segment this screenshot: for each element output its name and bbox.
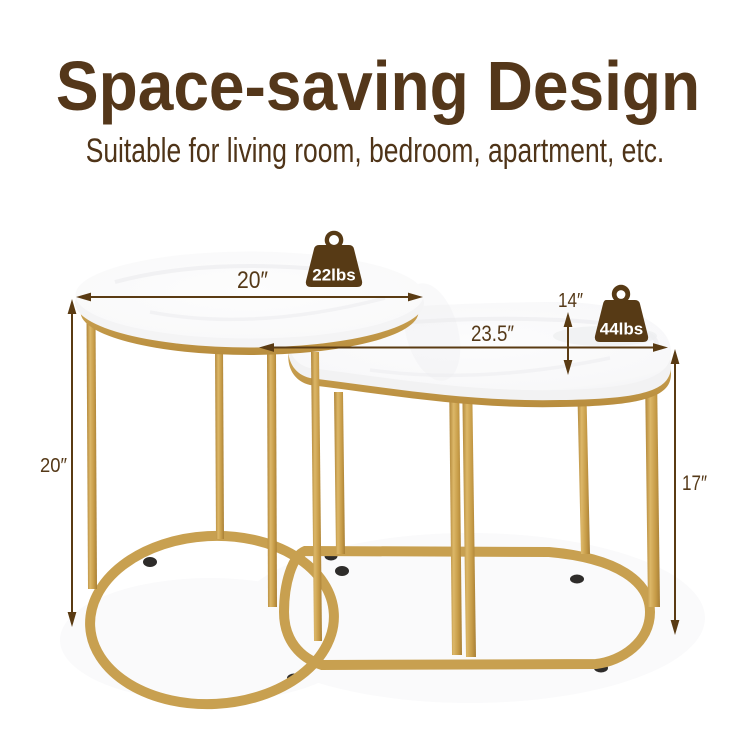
svg-text:20″: 20″ [237, 267, 268, 294]
svg-text:23.5″: 23.5″ [471, 321, 514, 346]
svg-text:44lbs: 44lbs [600, 320, 643, 339]
svg-text:14″: 14″ [558, 290, 583, 312]
svg-text:17″: 17″ [682, 472, 707, 495]
svg-text:20″: 20″ [40, 455, 67, 477]
svg-text:22lbs: 22lbs [312, 266, 355, 285]
